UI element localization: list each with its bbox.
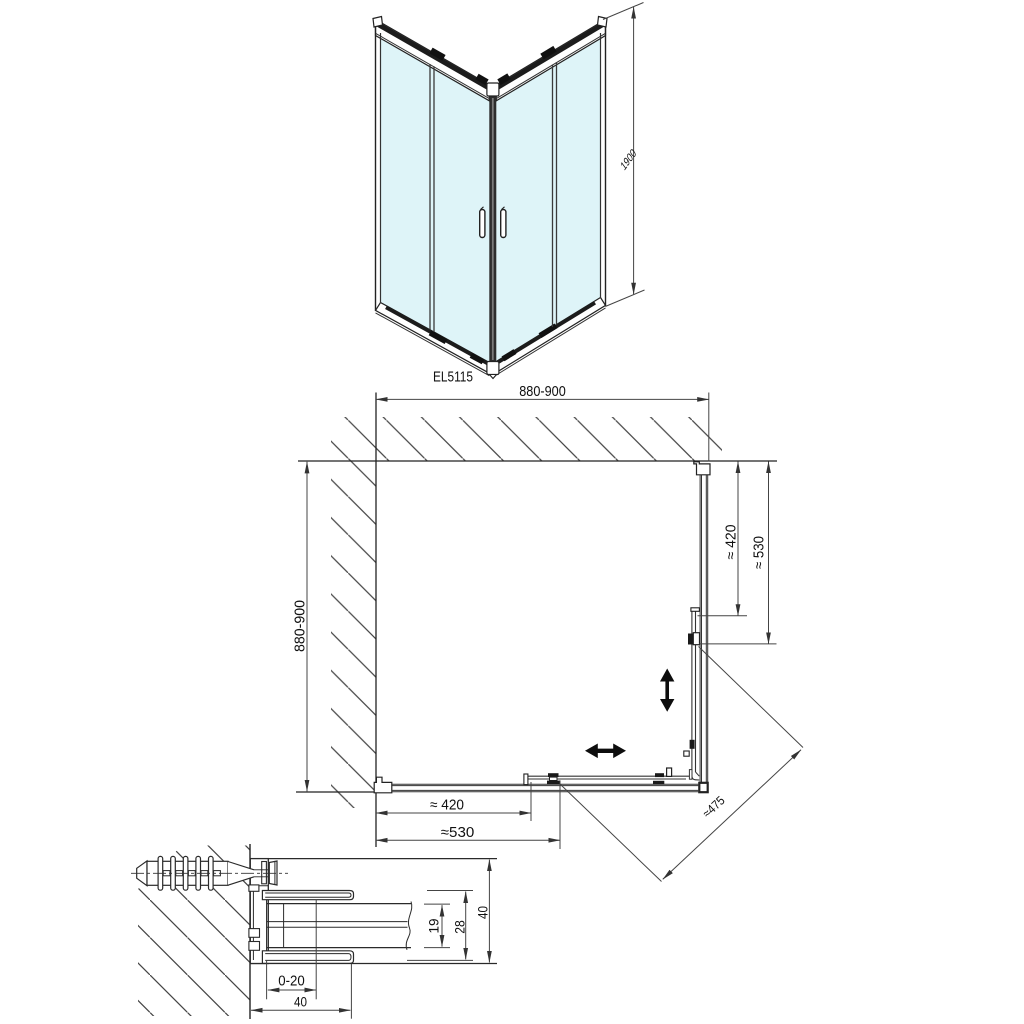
- svg-text:≈ 420: ≈ 420: [430, 798, 464, 814]
- svg-text:1900: 1900: [619, 147, 639, 174]
- svg-text:0-20: 0-20: [278, 974, 305, 990]
- svg-text:≈ 420: ≈ 420: [724, 525, 740, 560]
- svg-text:40: 40: [476, 906, 491, 919]
- svg-text:19: 19: [427, 919, 442, 934]
- svg-text:EL5115: EL5115: [433, 370, 473, 386]
- svg-text:≈475: ≈475: [700, 793, 728, 820]
- svg-text:880-900: 880-900: [292, 600, 309, 652]
- svg-text:880-900: 880-900: [519, 383, 566, 400]
- svg-text:28: 28: [453, 920, 468, 934]
- svg-text:≈ 530: ≈ 530: [752, 536, 768, 569]
- svg-text:40: 40: [294, 995, 307, 1010]
- svg-text:≈530: ≈530: [441, 825, 475, 841]
